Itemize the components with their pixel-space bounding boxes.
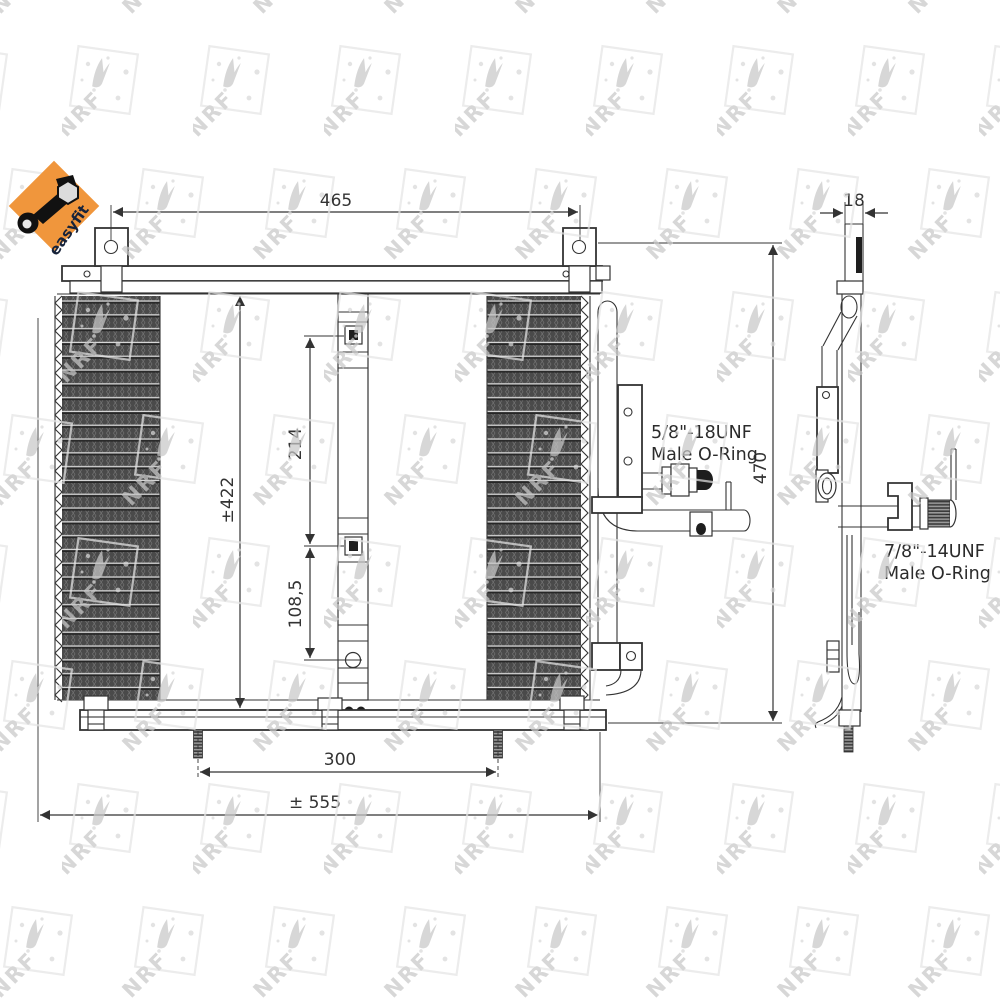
condenser-technical-drawing: NRF	[0, 0, 1000, 1000]
nrf-watermark-layer	[0, 0, 1000, 1000]
